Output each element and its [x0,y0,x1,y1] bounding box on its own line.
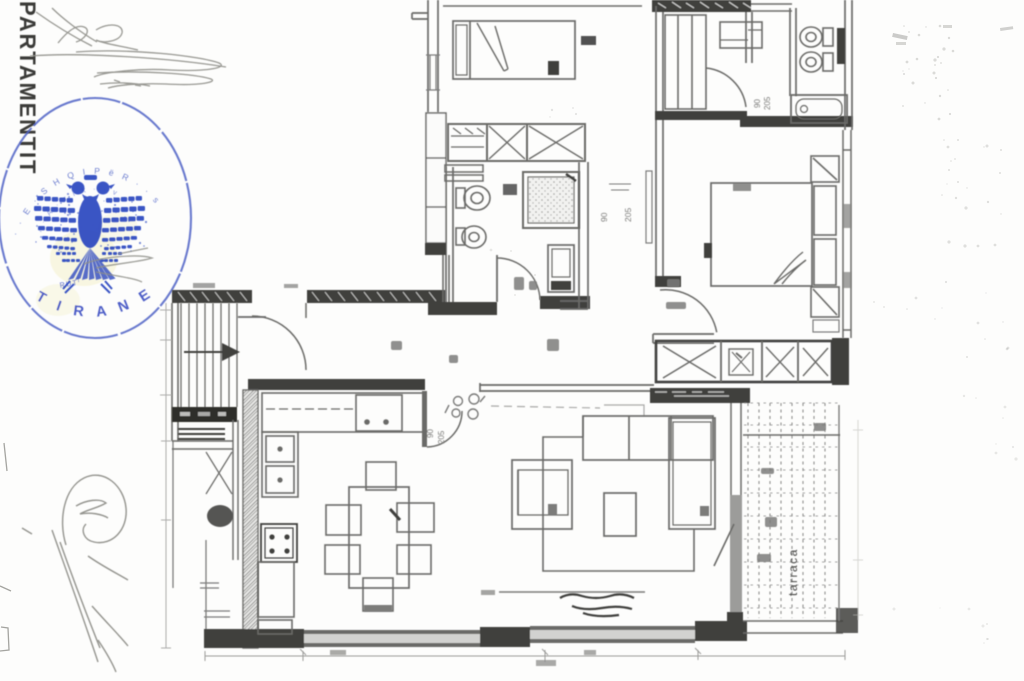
svg-text:PARTAMENTIT: PARTAMENTIT [15,1,40,175]
svg-text:205: 205 [623,208,633,222]
svg-text:205: 205 [437,430,446,444]
svg-text:90: 90 [753,99,762,108]
svg-text:90: 90 [426,429,435,438]
svg-text:90: 90 [599,212,609,222]
svg-text:205: 205 [763,96,772,110]
svg-text:tarraca: tarraca [786,548,800,596]
